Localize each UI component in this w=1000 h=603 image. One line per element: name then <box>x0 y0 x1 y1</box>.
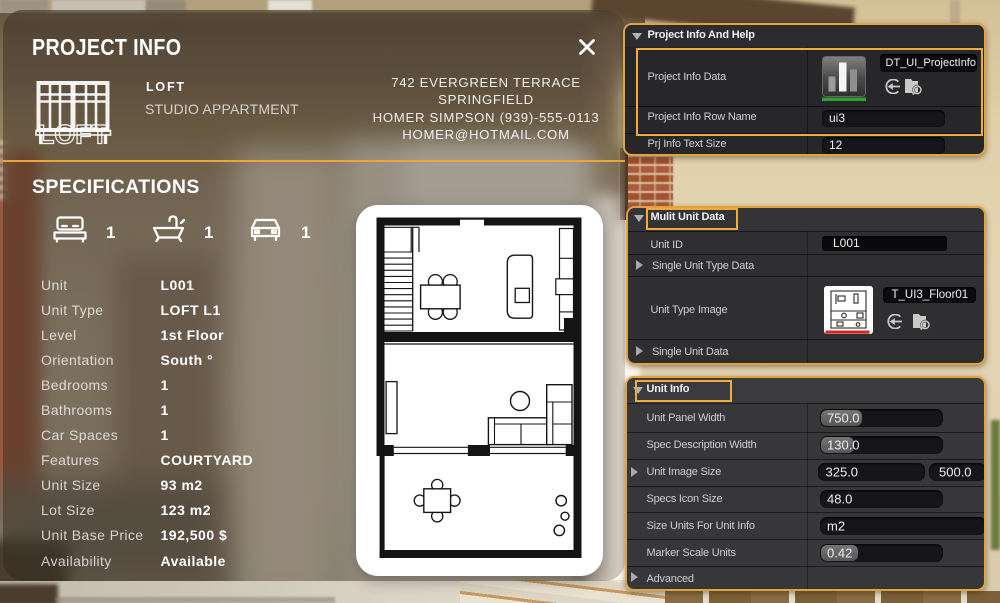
svg-text:LOFT: LOFT <box>38 120 108 146</box>
